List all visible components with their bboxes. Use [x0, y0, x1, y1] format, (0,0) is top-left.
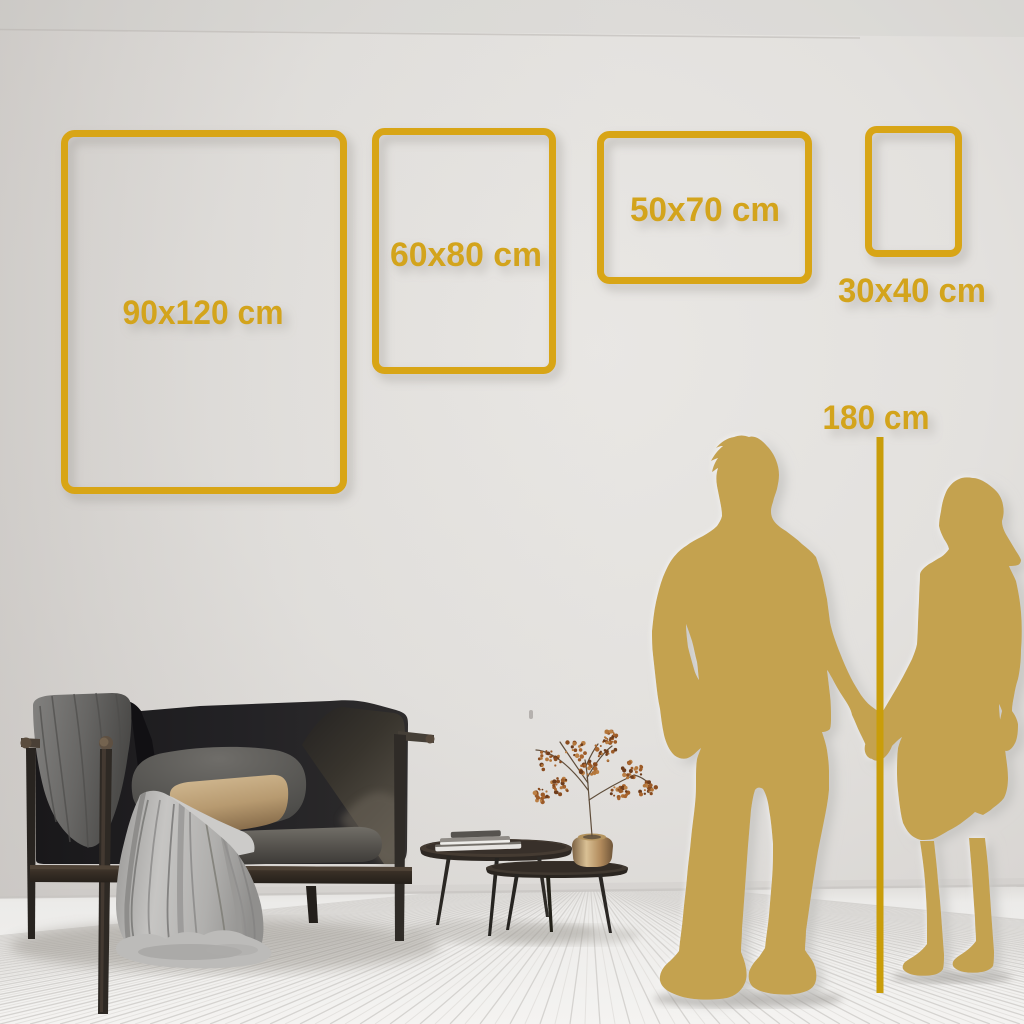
svg-text:180 cm: 180 cm [823, 399, 930, 437]
svg-text:90x120 cm: 90x120 cm [123, 294, 284, 332]
svg-text:60x80 cm: 60x80 cm [390, 236, 542, 274]
svg-text:30x40 cm: 30x40 cm [838, 272, 986, 310]
svg-text:50x70 cm: 50x70 cm [630, 191, 780, 229]
